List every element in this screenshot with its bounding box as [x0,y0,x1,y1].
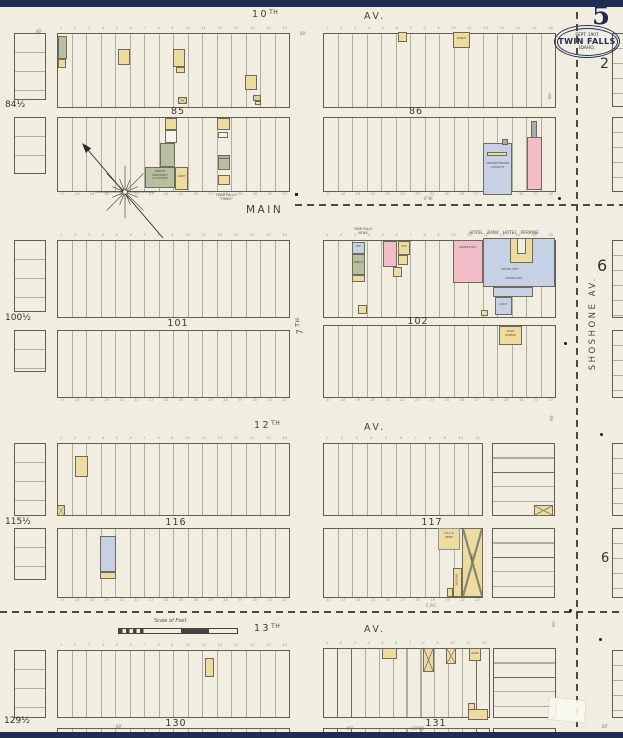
adjacent-sheet-ref: 6 [597,258,607,274]
sample-room-label: SAMPLE RM. [454,246,482,249]
building [398,32,407,42]
scale-bar-segment [209,629,237,633]
street-label-av-12th: AV. [364,423,386,433]
street-ordinal: TH [269,9,278,16]
block-116-lower [57,528,290,598]
compass-rose [58,138,178,248]
hydrant-dot [564,342,567,345]
right-partial-lots [612,650,623,718]
church-chimney [502,139,508,145]
sanborn-map-sheet: 12345678910111213141516 1234567891011121… [0,0,623,738]
outbuilding [57,505,65,516]
right-partial-lots [612,240,623,318]
lot-numbers-row: 17181920212223242526272829303132 [57,399,290,403]
hotel-office-label: HOTEL OFF. [490,268,530,272]
street-ordinal: TH [271,623,280,630]
scale-bar [118,628,238,634]
street-label-main: MAIN [246,205,283,216]
lot-numbers-row: 123456789101112 [323,642,490,646]
building [352,275,365,282]
outbuilding [178,97,187,104]
barn-label: BARN [453,37,470,41]
block-number-101: 101 [160,319,196,329]
building [58,59,66,68]
building [75,456,88,477]
street-width-label: 60' [116,725,122,729]
block-131 [323,648,490,718]
sale-stable-label: SALE STABLE [499,330,522,337]
street-label-av-13th: AV. [364,625,386,635]
scale-bar-segment [119,629,147,633]
street-label-10th: 10TH [252,10,278,20]
right-partial-lots [612,117,623,192]
lot-numbers-row: 12345678910111213141516 [57,27,290,31]
twin-falls-times-label: TWIN FALLS "TIMES" [203,193,249,202]
news-printing-label: PRINT'G [352,262,365,265]
outbuilding [255,101,261,105]
street-ordinal: TH [271,420,280,427]
hydrant-dot [600,433,603,436]
livery-label: LIVERY [471,549,475,569]
lot-numbers-row: 1213141516171819202122 [323,599,483,603]
building [176,67,185,73]
left-partial-lots [14,33,46,100]
street-ordinal: TH [294,318,301,327]
outbuilding [423,648,434,672]
block-number-85: 85 [164,107,192,117]
street-number: 10 [252,9,269,20]
scale-bar-segment [147,629,181,633]
wagons-label: WAGONS [456,571,459,589]
adjacent-sheet-ref: 6 [601,552,609,565]
scale-label: Scale of Feet [154,619,186,624]
water-main-main-st [295,204,623,206]
page-ref: 2 [600,57,609,71]
block-131-right [493,648,556,718]
building [118,49,130,65]
block-number-130: 130 [158,719,194,729]
left-partial-lots [14,650,46,718]
hall-tower [531,121,537,138]
street-label-13th: 13TH [254,624,280,634]
block-number-102: 102 [400,317,436,327]
water-main-13th [0,611,623,613]
outbuilding [481,310,488,316]
adjacent-block-ref: 129½ [4,717,30,726]
right-partial-lots [612,528,623,598]
block-101-upper [57,240,290,318]
street-number: 13 [254,623,271,634]
building [100,572,116,579]
block-130 [57,650,290,718]
lot-numbers-row: 12345678910111213141516 [57,437,290,441]
outbuilding [358,305,367,314]
scan-edge-top [0,0,623,7]
block-101-lower [57,330,290,398]
lot-numbers-row: 17181920212223242526272829303132 [323,399,556,403]
right-partial-lots [612,443,623,516]
street-label-7th: 7TH [296,318,304,335]
stamp-city: TWIN FALLS [558,37,617,46]
building [165,118,177,130]
church-porch [487,152,507,156]
building [173,49,185,67]
adjacent-block-ref: 100½ [5,314,31,323]
block-number-117: 117 [414,518,450,528]
lot-numbers-row: 12345678910111213141516 [57,644,290,648]
presbyterian-church-label: PRESBYTERIAN CHURCH [483,162,512,169]
brick-hall [527,137,542,190]
block-86-upper [323,33,556,108]
building [382,648,397,659]
building [58,36,67,59]
street-label-12th: 12TH [254,421,280,431]
lot-numbers-row: 17181920212223242526272829303132 [57,599,290,603]
scan-edge-bottom [0,732,623,738]
hotel-annex [493,287,533,297]
block-117-upper-left [323,443,483,516]
publisher-stamp-oval: SEPT. 1907 TWIN FALLS IDAHO. [554,25,620,58]
street-width-label: 60' [36,30,42,34]
block-117-lower-right [492,528,555,598]
street-label-shoshone: SHOSHONE AV. [589,238,598,408]
hydrant-dot [295,193,298,196]
building [218,132,228,138]
building [217,118,230,130]
exposure-note: NO [347,727,353,731]
water-main-cpc-label: C.P.C. [426,604,437,608]
dining-room-label: DINING RM. [492,277,536,281]
block-number-86: 86 [402,107,430,117]
left-partial-lots [14,117,46,174]
office-label: OFF. [398,245,410,248]
block-116-upper [57,443,290,516]
outbuilding [468,709,488,720]
barn-label: BARN [469,652,481,655]
dray-label: DRAY [495,303,512,307]
hydrant-dot [569,609,572,612]
block-86-lower [323,117,556,192]
scale-bar-segment [181,629,209,633]
building [383,241,397,267]
street-label-av-top: AV. [364,12,386,22]
twin-falls-news-label: TWIN FALLS NEWS [344,227,382,235]
street-width-label: 60' [300,32,306,36]
left-partial-lots [14,528,46,580]
building [245,75,257,90]
news-office-label: OFF. [352,245,365,248]
exposure-note: EXPOS- [411,727,426,731]
building [218,175,230,185]
left-partial-lots [14,330,46,372]
right-partial-lots [612,330,623,398]
building [398,255,408,265]
lot-numbers-row: 12345678910111213141516 [323,27,556,31]
hotel-courtyard-notch [517,238,526,254]
outbuilding [447,588,453,597]
outbuilding [446,648,456,664]
stamp-state: IDAHO. [558,46,617,51]
outbuilding [534,505,553,516]
hay-feed-label: HAY & FEED [438,532,460,539]
block-number-116: 116 [158,518,194,528]
building [205,658,214,677]
water-main-size-label: 6"W. [424,197,433,201]
adjacent-block-ref: 84½ [5,101,25,110]
building [393,267,402,277]
left-partial-lots [14,443,46,516]
hydrant-dot [599,638,602,641]
hydrant-dot [558,197,561,200]
building [218,155,230,159]
street-number: 7 [295,327,304,335]
street-width-label: 60' [549,414,554,421]
lot-numbers-row: 1234567891011 [323,437,483,441]
water-main-shoshone [576,0,578,738]
street-width-label: 60' [551,620,556,627]
street-number: 12 [254,420,271,431]
hotel-row-label: HOTEL BANK HOTEL PERRINE [451,230,557,235]
lot-numbers-row: 17181920212223242526272829303132 [323,193,556,197]
left-partial-lots [14,240,46,312]
embossed-stamp [548,697,586,723]
building [100,536,116,572]
north-arrow-head [82,143,91,153]
publisher-stamp-inner: SEPT. 1907 TWIN FALLS IDAHO. [557,28,618,56]
street-width-label: 60' [602,725,608,729]
adjacent-block-ref: 115½ [5,518,31,527]
